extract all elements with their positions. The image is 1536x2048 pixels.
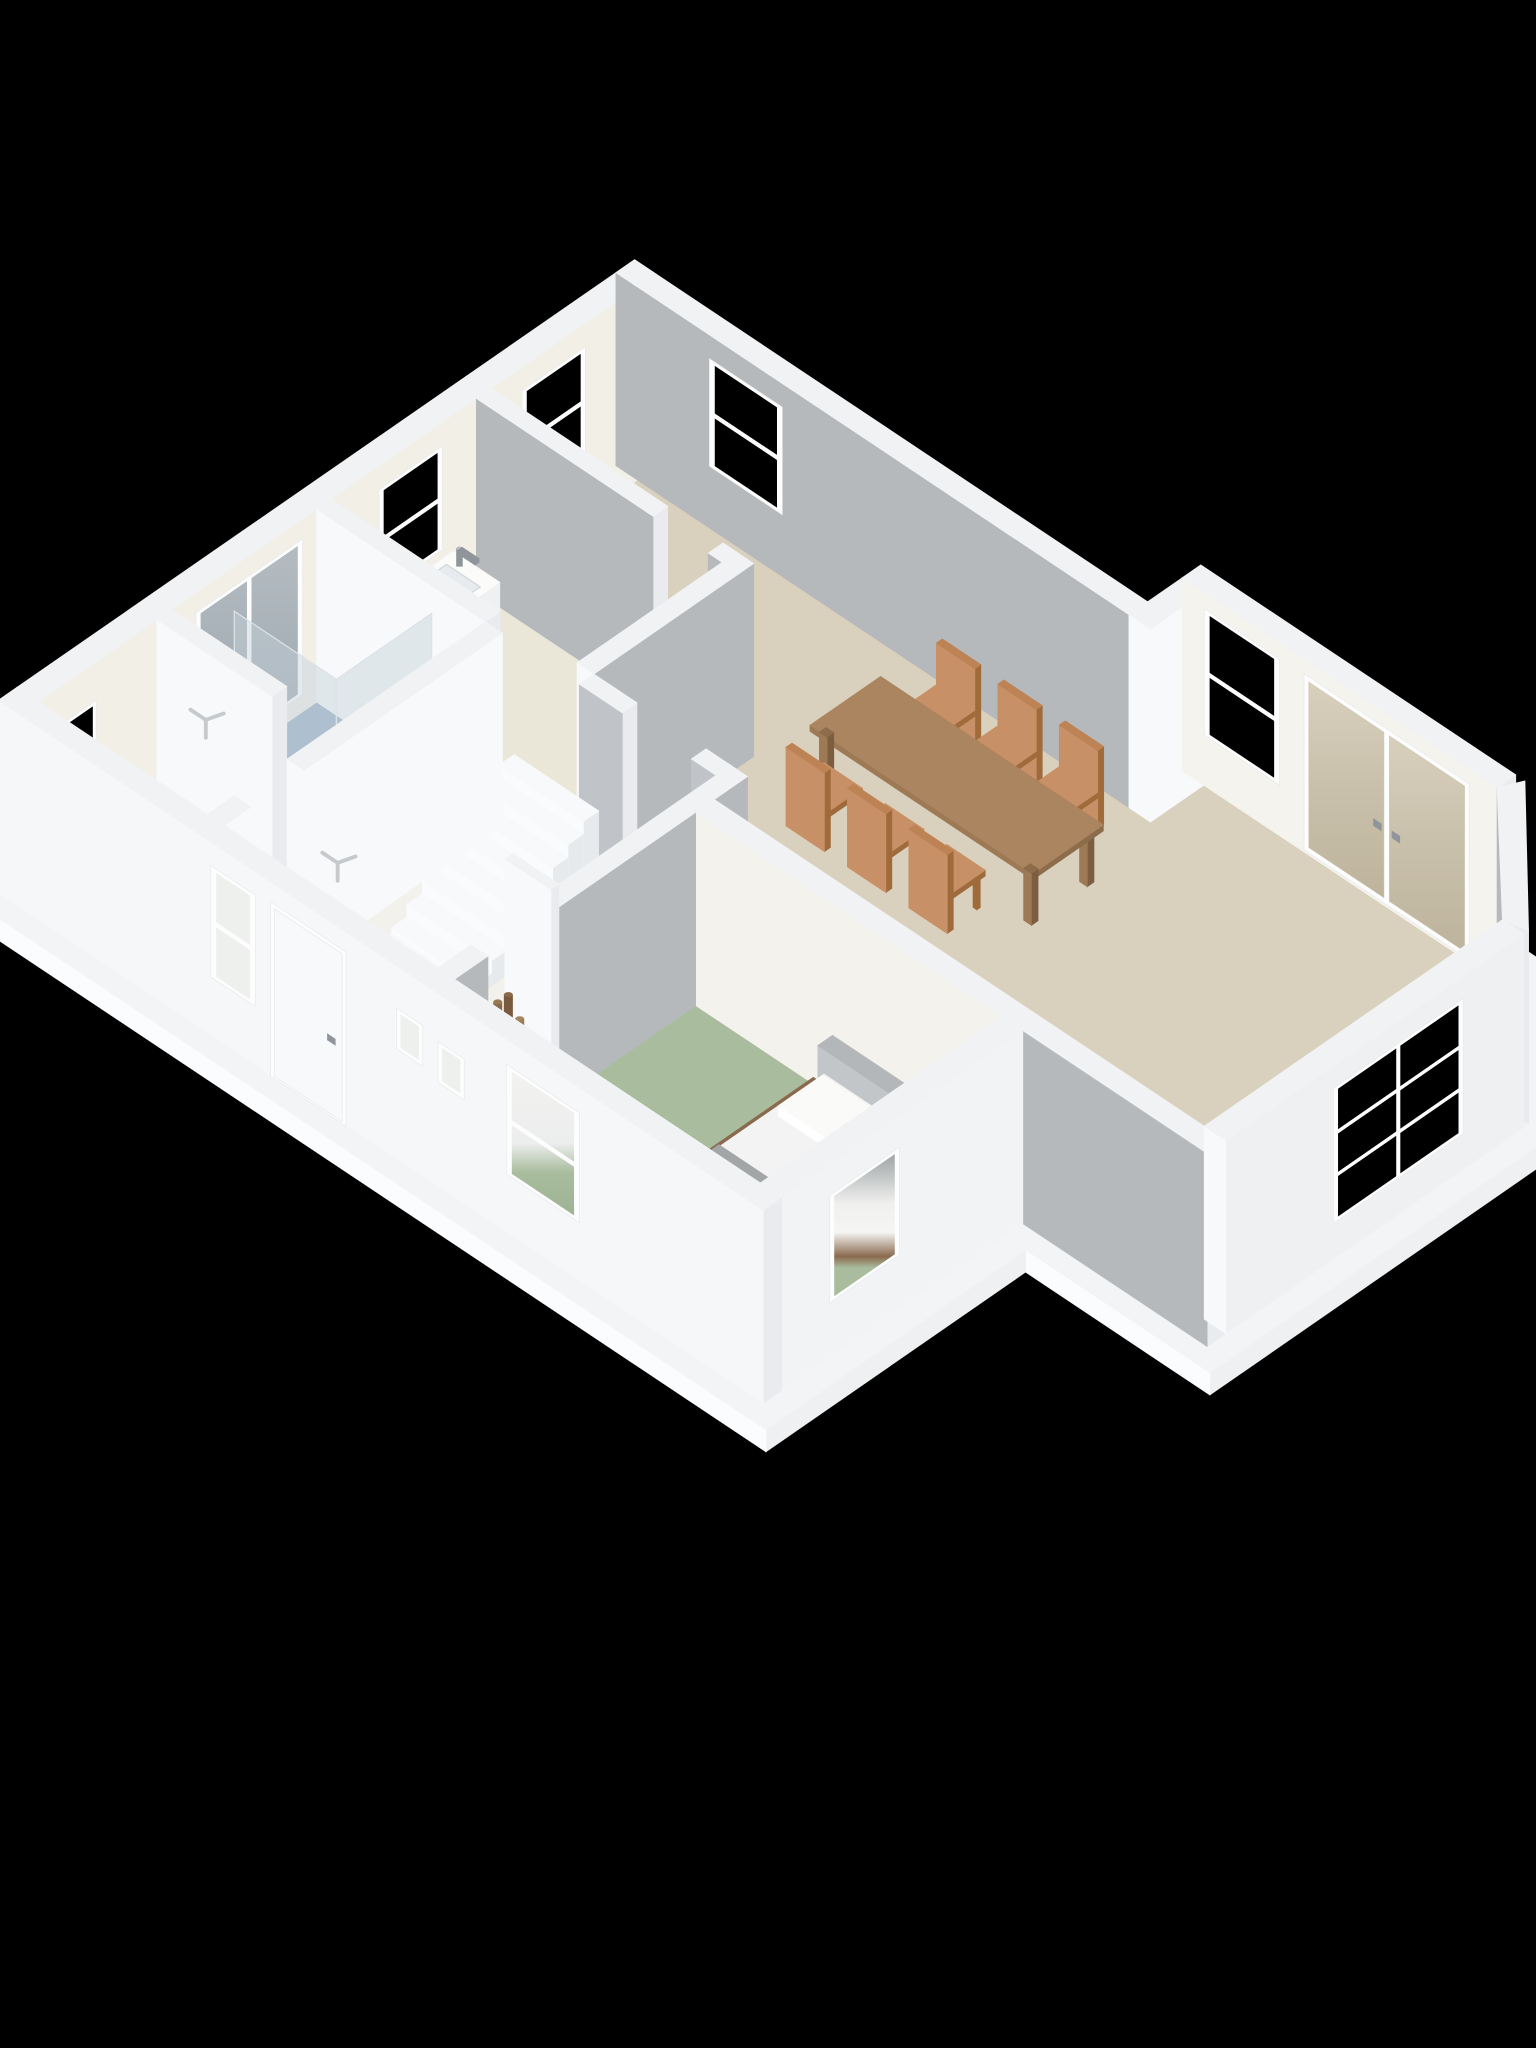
floorplan-viewport xyxy=(0,0,1536,2048)
floorplan-3d-canvas xyxy=(0,0,1536,2048)
table-leg-4 xyxy=(1024,864,1038,926)
